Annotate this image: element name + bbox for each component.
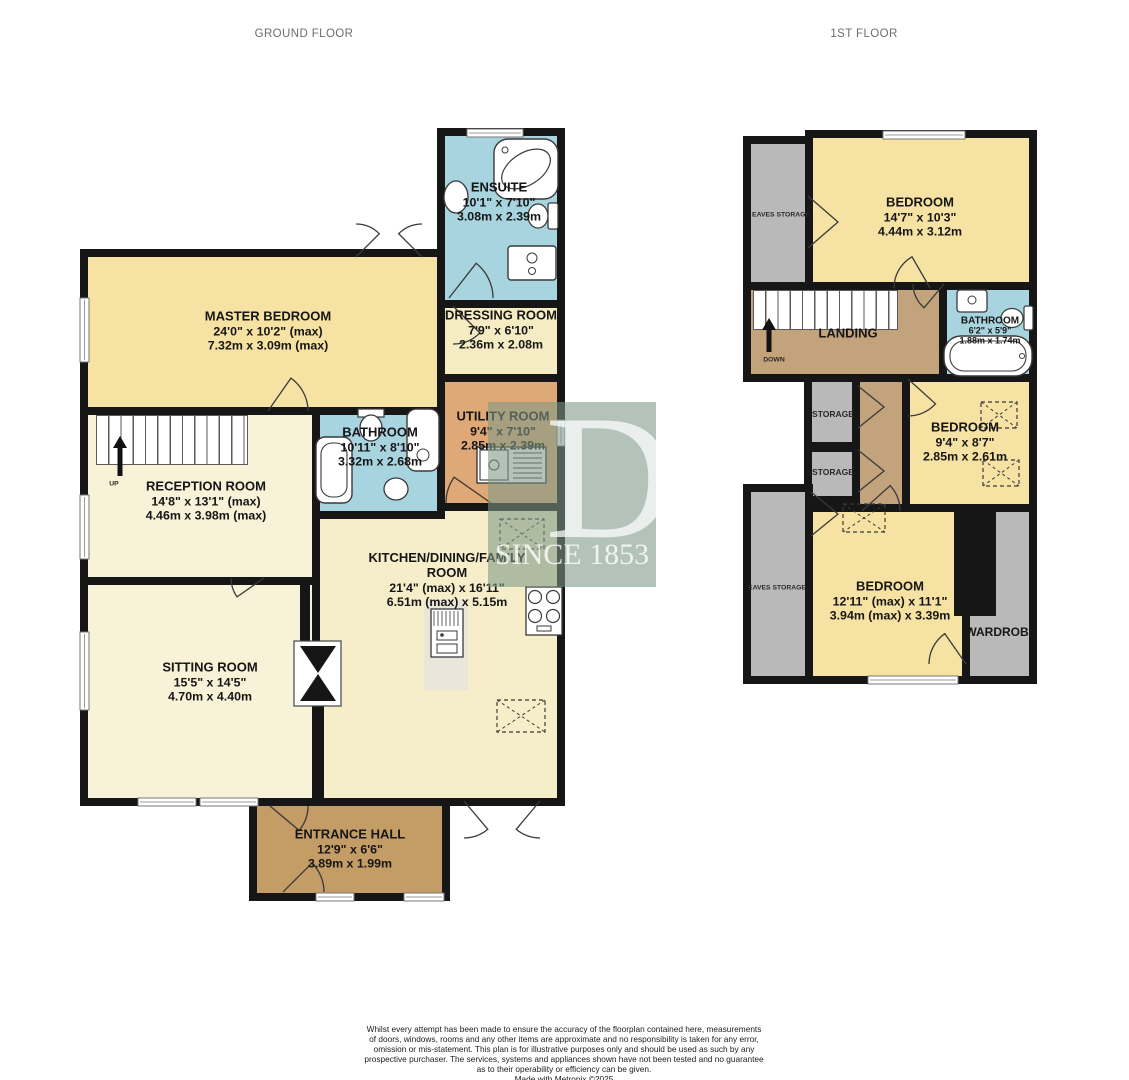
stairs-up-icon	[96, 415, 248, 465]
label-bedroom3: BEDROOM 12'11" (max) x 11'1" 3.94m (max)…	[830, 579, 951, 622]
label-eaves-storage-bottom: EAVES STORAGE	[748, 585, 806, 592]
label-sitting-room: SITTING ROOM 15'5" x 14'5" 4.70m x 4.40m	[162, 660, 257, 703]
door-arc-icon	[464, 801, 488, 838]
label-reception: RECEPTION ROOM 14'8" x 13'1" (max) 4.46m…	[146, 479, 267, 522]
label-wardrobe: WARDROBE	[965, 626, 1036, 640]
ground-floor-title: GROUND FLOOR	[255, 28, 354, 40]
label-landing: LANDING	[818, 327, 877, 342]
door-arc-icon	[516, 801, 540, 838]
label-ground-bathroom: BATHROOM 10'11" x 8'10" 3.32m x 2.68m	[338, 425, 422, 468]
disclaimer-text: Whilst every attempt has been made to en…	[329, 1025, 799, 1080]
label-storage2: STORAGE	[812, 467, 854, 477]
label-stairs-down: DOWN	[763, 357, 785, 364]
label-dressing-room: DRESSING ROOM 7'9" x 6'10" 2.36m x 2.08m	[445, 308, 557, 351]
stairs-down-icon	[753, 290, 898, 330]
room-kitchen	[312, 503, 565, 806]
label-utility: UTILITY ROOM 9'4" x 7'10" 2.85m x 2.39m	[457, 409, 550, 452]
label-eaves-storage-top: EAVES STORAGE	[752, 212, 810, 219]
label-master-bedroom: MASTER BEDROOM 24'0" x 10'2" (max) 7.32m…	[205, 309, 331, 352]
label-ensuite: ENSUITE 10'1" x 7'10" 3.08m x 2.39m	[457, 180, 541, 223]
label-stairs-up: UP	[109, 481, 118, 488]
label-first-bathroom: BATHROOM 6'2" x 5'9" 1.88m x 1.74m	[959, 315, 1020, 346]
label-storage1: STORAGE	[812, 409, 854, 419]
label-bedroom1: BEDROOM 14'7" x 10'3" 4.44m x 3.12m	[878, 195, 962, 238]
first-floor-title: 1ST FLOOR	[830, 28, 897, 40]
label-bedroom2: BEDROOM 9'4" x 8'7" 2.85m x 2.61m	[923, 420, 1007, 463]
label-kitchen: KITCHEN/DINING/FAMILY ROOM 21'4" (max) x…	[369, 551, 526, 609]
floorplan-canvas: GROUND FLOOR 1ST FLOOR ENSUITE 10'1" x 7…	[0, 0, 1129, 1080]
room-wardrobe	[962, 504, 1037, 684]
label-entrance-hall: ENTRANCE HALL 12'9" x 6'6" 3.89m x 1.99m	[295, 827, 406, 870]
